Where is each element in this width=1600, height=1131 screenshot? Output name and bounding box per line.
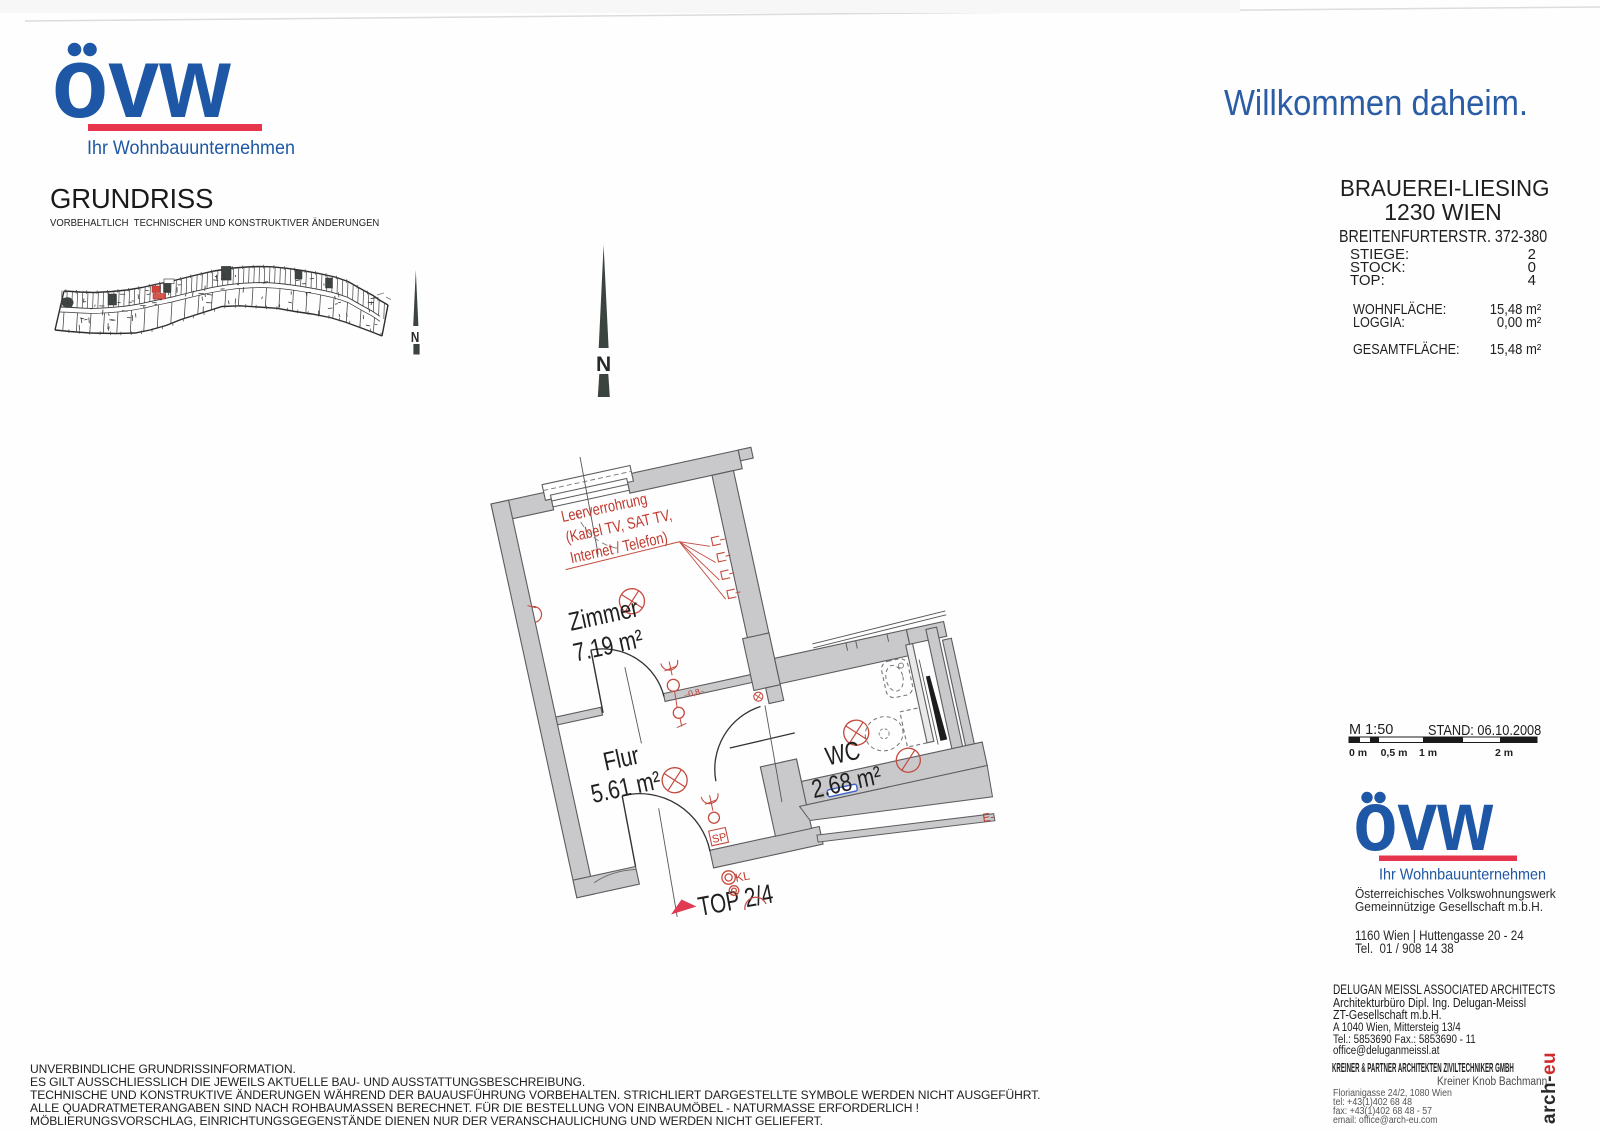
svg-text:N: N xyxy=(411,329,419,346)
svg-text:⎯0,8⎯: ⎯0,8⎯ xyxy=(683,685,706,699)
svg-text:E-: E- xyxy=(981,809,995,825)
svg-text:N: N xyxy=(596,353,611,376)
svg-text:Ihr Wohnbauunternehmen: Ihr Wohnbauunternehmen xyxy=(1379,866,1546,884)
svg-text:SP: SP xyxy=(711,831,728,846)
svg-text:ovw: ovw xyxy=(1354,775,1494,868)
svg-text:5.61 m²: 5.61 m² xyxy=(588,765,663,808)
svg-text:KL: KL xyxy=(734,868,751,885)
